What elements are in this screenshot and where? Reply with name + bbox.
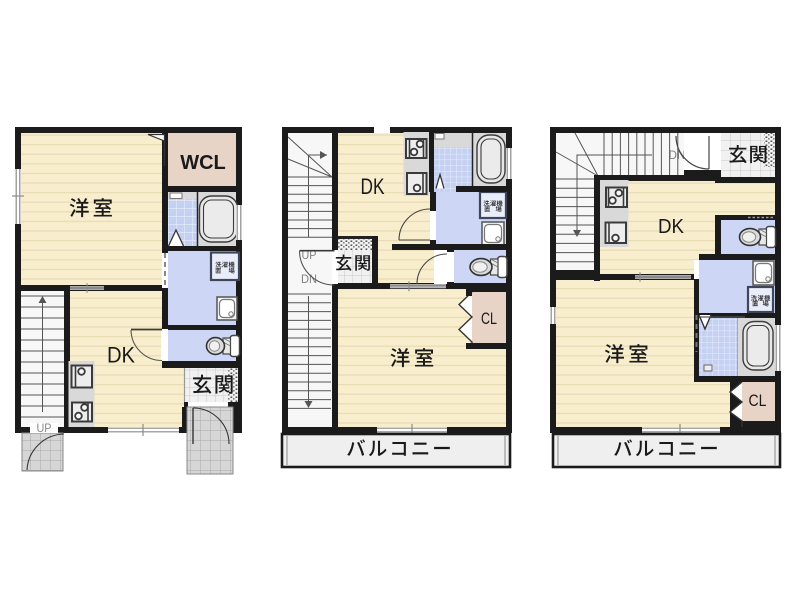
svg-text:DK: DK	[107, 343, 135, 368]
svg-text:CL: CL	[749, 391, 767, 410]
svg-text:CL: CL	[481, 309, 497, 328]
svg-text:UP: UP	[37, 423, 52, 435]
svg-text:DN: DN	[301, 274, 317, 286]
svg-text:UP: UP	[302, 250, 317, 262]
svg-text:WCL: WCL	[180, 152, 226, 174]
svg-text:DK: DK	[361, 174, 385, 199]
svg-text:DK: DK	[658, 215, 684, 238]
